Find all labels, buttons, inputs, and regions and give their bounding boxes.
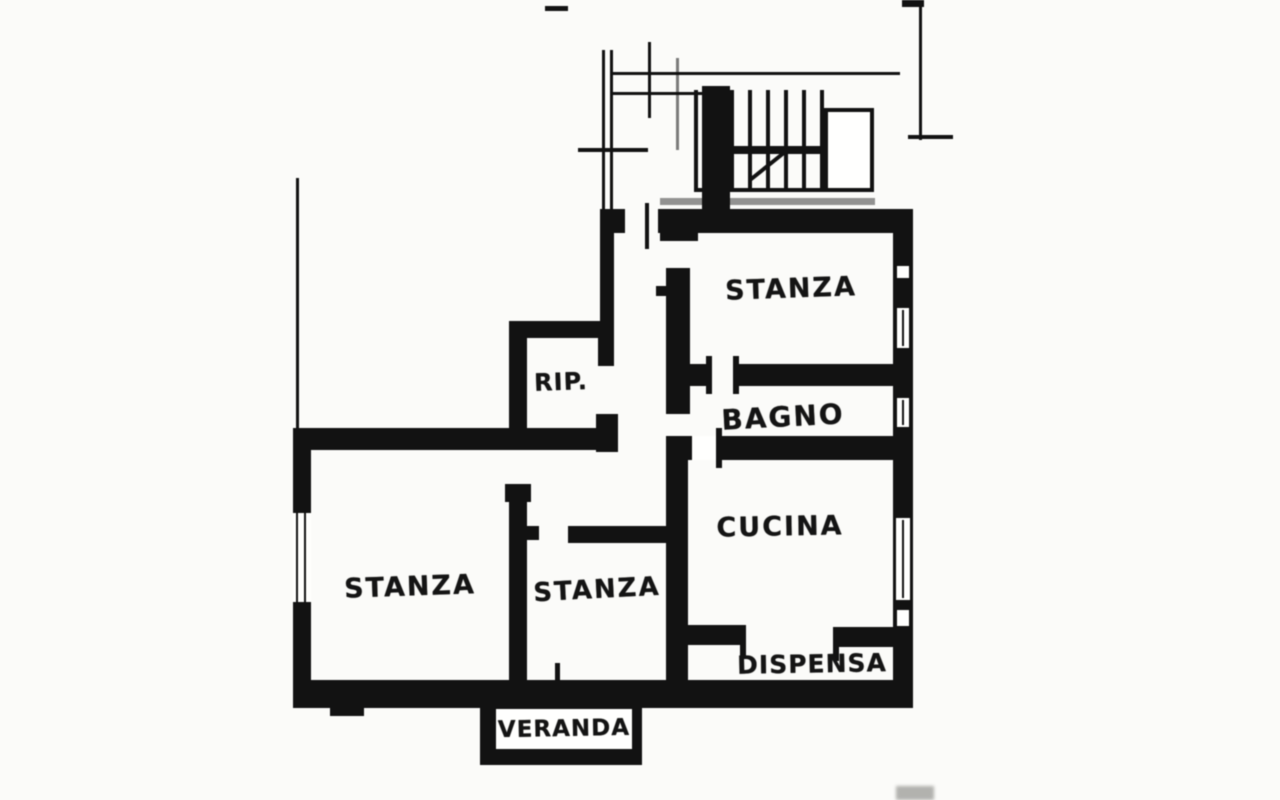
wall-right bbox=[893, 215, 913, 708]
scan-smudge bbox=[896, 786, 934, 800]
bagno-door-jamb-left bbox=[706, 356, 712, 394]
rip-door-jamb-block bbox=[596, 414, 618, 452]
cucina-door-jamb bbox=[716, 428, 722, 468]
rip-wall-left bbox=[509, 321, 527, 450]
floorplan-canvas: STANZA BAGNO CUCINA RIP. STANZA STANZA D… bbox=[0, 0, 1280, 800]
room-label-dispensa: DISPENSA bbox=[737, 648, 887, 680]
stair-landing bbox=[826, 110, 872, 190]
room-label-ripostiglio: RIP. bbox=[534, 367, 589, 397]
dispensa-wall-left bbox=[686, 625, 746, 645]
floorplan-drawing: STANZA BAGNO CUCINA RIP. STANZA STANZA D… bbox=[0, 0, 1280, 800]
bagno-door-jamb-right bbox=[733, 356, 739, 394]
staircase bbox=[660, 86, 875, 210]
stair-mid-rail bbox=[726, 146, 834, 154]
window-dispensa bbox=[897, 610, 909, 626]
entrance-jamb-block bbox=[660, 222, 698, 241]
cucina-door-gap bbox=[692, 436, 718, 460]
dispensa-wall-right bbox=[833, 627, 895, 647]
rip-wall-top bbox=[509, 321, 612, 338]
pillar-bottom-left bbox=[330, 700, 364, 716]
entrance-door-jamb bbox=[645, 203, 649, 249]
stanza-tr-wall-left bbox=[666, 268, 690, 414]
floorplan-walls-svg bbox=[0, 0, 1280, 800]
stanza-divider-wall bbox=[509, 484, 527, 702]
room-label-stanza-top-right: STANZA bbox=[725, 271, 858, 307]
room-label-stanza-left: STANZA bbox=[344, 569, 477, 605]
hall-wall-left bbox=[600, 225, 614, 366]
cucina-wall-left bbox=[666, 436, 688, 702]
room-label-veranda: VERANDA bbox=[498, 715, 631, 743]
room-label-bagno: BAGNO bbox=[721, 397, 846, 436]
room-label-cucina: CUCINA bbox=[716, 510, 844, 543]
bagno-wall-top-right bbox=[735, 364, 897, 386]
window-stanza-left bbox=[293, 513, 311, 602]
wall-mid-horizontal bbox=[293, 428, 617, 450]
stanza-middle-wall-top bbox=[568, 526, 668, 543]
